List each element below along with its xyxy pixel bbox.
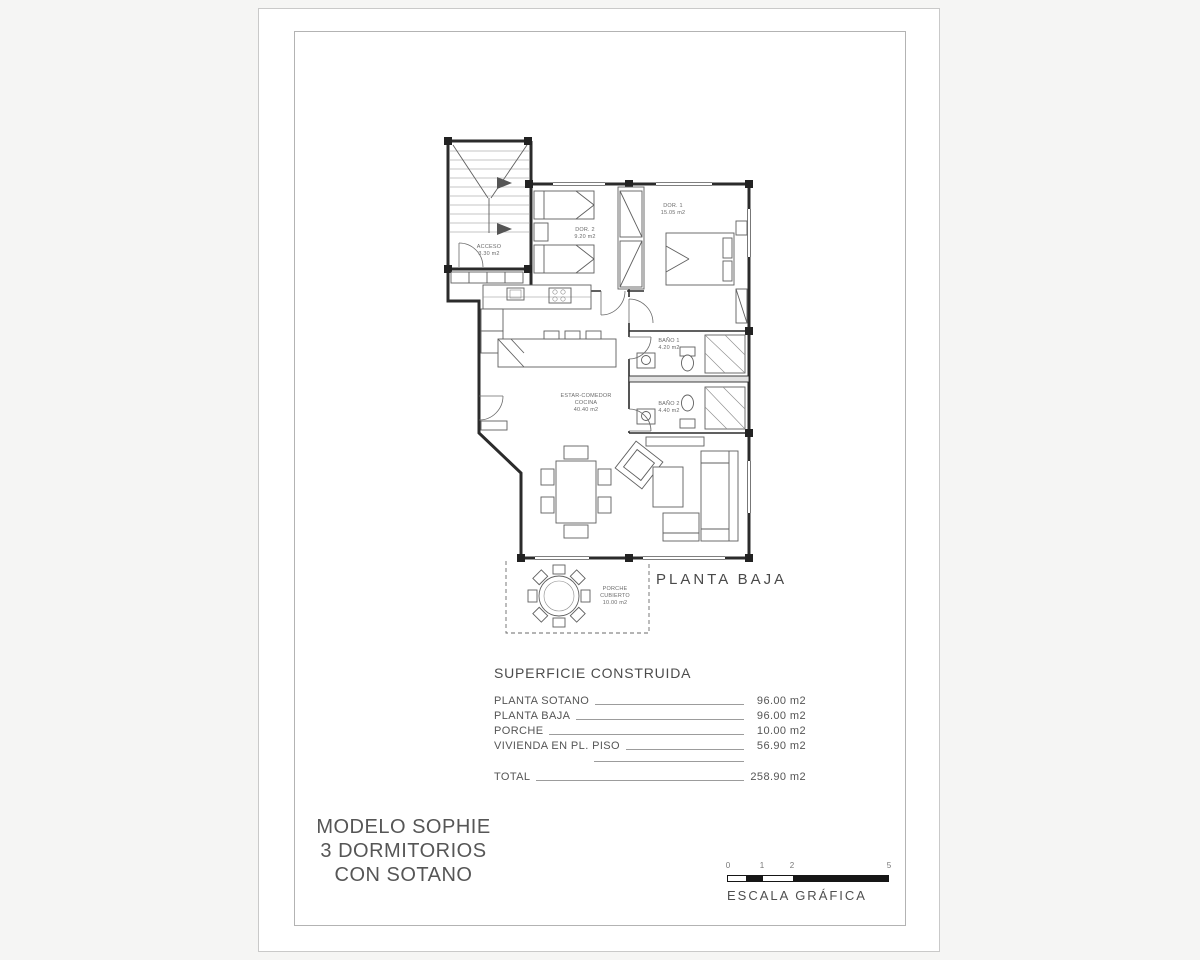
row-leader — [576, 718, 744, 720]
row-value: 96.00 m2 — [750, 710, 806, 722]
room-area-dor2: 9.20 m2 — [574, 234, 595, 240]
sofa-set — [615, 437, 738, 541]
row-label: PLANTA BAJA — [494, 710, 570, 722]
row-leader — [549, 733, 744, 735]
room-label-bano1: BAÑO 1 — [658, 337, 679, 344]
room-area-acceso: 3.30 m2 — [478, 251, 499, 257]
room-label-bano2: BAÑO 2 — [658, 400, 679, 407]
surface-total-row: TOTAL 258.90 m2 — [494, 768, 806, 783]
surface-table: SUPERFICIE CONSTRUIDA PLANTA SOTANO 96.0… — [494, 665, 806, 783]
room-label-acceso: ACCESO — [477, 244, 502, 250]
total-label: TOTAL — [494, 771, 530, 783]
row-label: VIVIENDA EN PL. PISO — [494, 740, 620, 752]
scale-bar: 0 1 2 5 ESCALA GRÁFICA — [727, 861, 895, 913]
scale-segments — [727, 875, 889, 882]
scale-label: ESCALA GRÁFICA — [727, 888, 867, 903]
total-divider — [594, 761, 744, 763]
scale-tick: 5 — [887, 861, 891, 870]
row-leader — [595, 703, 744, 705]
floor-plan: ACCESO 3.30 m2 DOR. 2 9.20 m2 DOR. 1 15.… — [441, 126, 771, 641]
room-label-porche-2: CUBIERTO — [600, 593, 630, 599]
total-value: 258.90 m2 — [750, 771, 806, 783]
title-block: MODELO SOPHIE 3 DORMITORIOS CON SOTANO — [311, 815, 496, 887]
plan-title: PLANTA BAJA — [656, 571, 836, 588]
row-label: PLANTA SOTANO — [494, 695, 589, 707]
title-line-2: 3 DORMITORIOS — [311, 839, 496, 863]
surface-row: PLANTA SOTANO 96.00 m2 — [494, 692, 806, 707]
stair-arrow-icon — [497, 223, 512, 235]
room-label-porche: PORCHE — [603, 586, 628, 592]
surface-row: VIVIENDA EN PL. PISO 56.90 m2 — [494, 737, 806, 752]
surface-row: PLANTA BAJA 96.00 m2 — [494, 707, 806, 722]
scale-tick: 0 — [726, 861, 730, 870]
surface-table-title: SUPERFICIE CONSTRUIDA — [494, 665, 806, 681]
room-area-bano2: 4.40 m2 — [658, 408, 679, 414]
plan-sheet: ACCESO 3.30 m2 DOR. 2 9.20 m2 DOR. 1 15.… — [258, 8, 940, 952]
title-line-1: MODELO SOPHIE — [311, 815, 496, 839]
page-background: { "sheet": { "plan_label": "PLANTA BAJA"… — [0, 0, 1200, 960]
room-area-dor1: 15.05 m2 — [661, 210, 686, 216]
room-area-bano1: 4.20 m2 — [658, 345, 679, 351]
bedroom1-bed — [666, 221, 747, 323]
scale-tick: 2 — [790, 861, 794, 870]
bathroom1-fixtures — [637, 335, 745, 373]
wardrobe — [618, 187, 644, 289]
dining-set — [541, 446, 611, 538]
row-leader — [626, 748, 744, 750]
room-label-dor2: DOR. 2 — [575, 227, 595, 233]
scale-tick: 1 — [760, 861, 764, 870]
row-value: 10.00 m2 — [750, 725, 806, 737]
bathroom2-fixtures — [637, 387, 745, 429]
row-label: PORCHE — [494, 725, 543, 737]
room-label-estar: ESTAR-COMEDOR — [560, 393, 611, 399]
row-value: 56.90 m2 — [750, 740, 806, 752]
porch-table — [528, 565, 590, 627]
surface-row: PORCHE 10.00 m2 — [494, 722, 806, 737]
title-line-3: CON SOTANO — [311, 863, 496, 887]
row-value: 96.00 m2 — [750, 695, 806, 707]
room-area-porche: 10.00 m2 — [603, 600, 628, 606]
room-area-estar: 40.40 m2 — [574, 407, 599, 413]
room-label-estar-2: COCINA — [575, 400, 598, 406]
row-leader — [536, 779, 744, 781]
room-label-dor1: DOR. 1 — [663, 203, 683, 209]
